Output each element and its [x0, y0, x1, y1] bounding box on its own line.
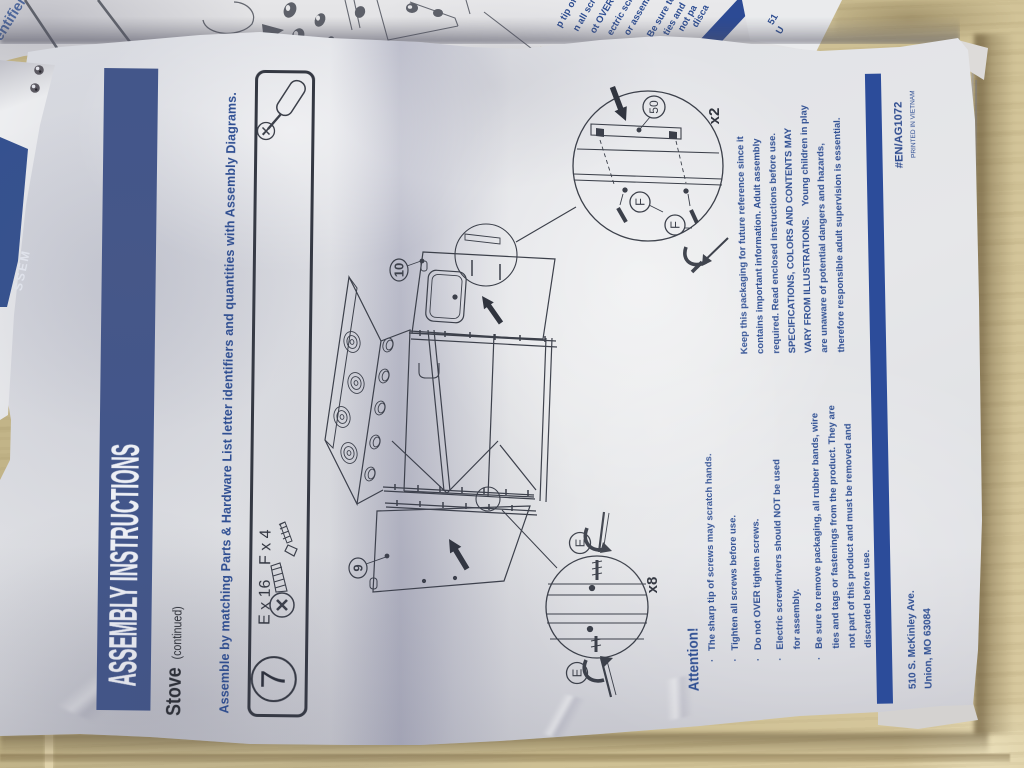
svg-text:50: 50 [647, 100, 661, 114]
svg-text:E: E [573, 538, 588, 547]
svg-text:x8: x8 [644, 577, 661, 594]
svg-text:x2: x2 [706, 108, 723, 125]
svg-text:E: E [570, 668, 585, 677]
svg-text:F: F [668, 221, 683, 229]
svg-text:10: 10 [392, 263, 407, 277]
svg-text:F: F [633, 198, 648, 206]
svg-text:9: 9 [351, 564, 366, 571]
